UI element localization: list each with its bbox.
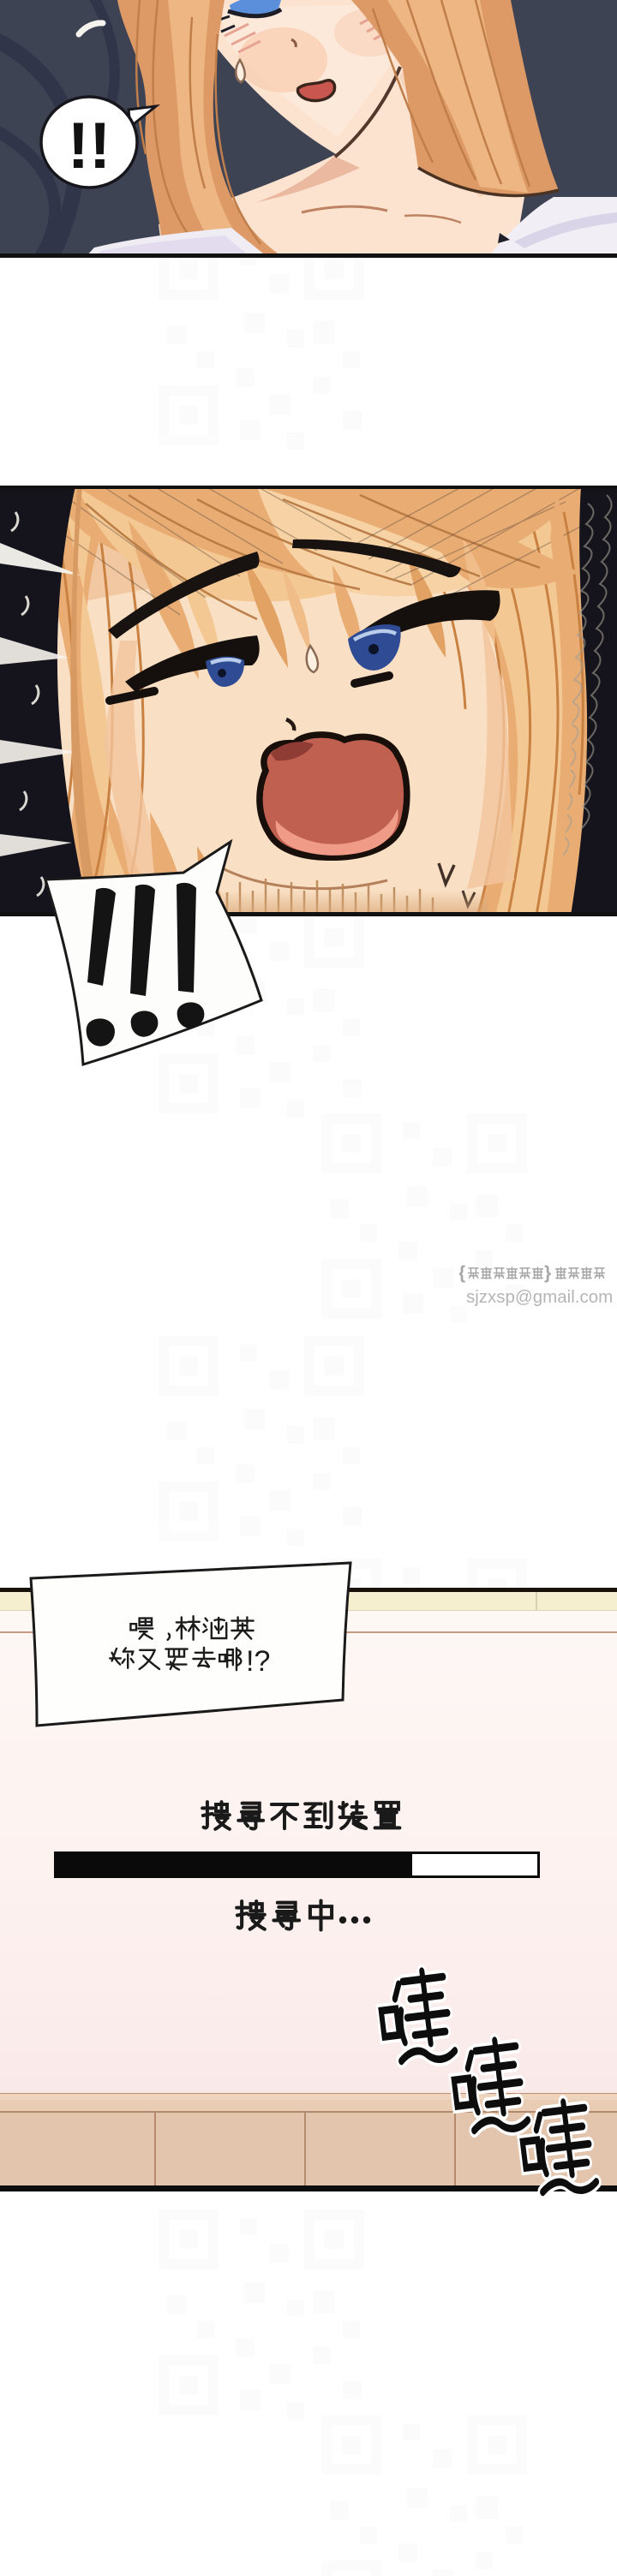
svg-text:{: { xyxy=(459,1264,465,1283)
svg-text:!!: !! xyxy=(68,110,111,182)
svg-text:!?: !? xyxy=(246,1645,270,1678)
svg-text:sjzxsp@gmail.com: sjzxsp@gmail.com xyxy=(466,1287,613,1307)
svg-text:}: } xyxy=(544,1264,551,1283)
